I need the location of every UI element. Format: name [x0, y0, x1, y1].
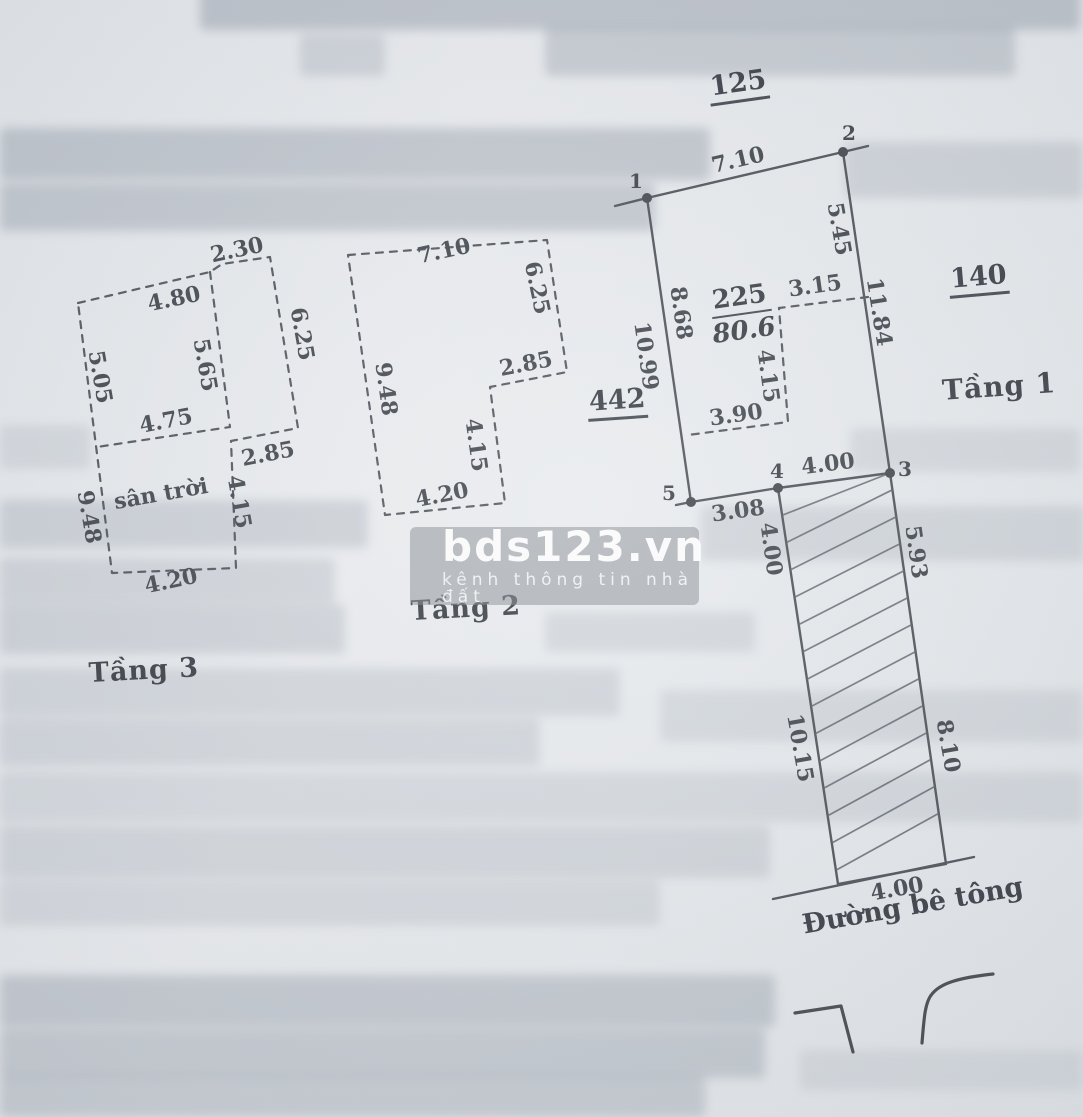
corner-point-number: 2 [842, 121, 856, 145]
lot-number-442: 442 [586, 383, 649, 422]
corner-point-number: 5 [662, 481, 676, 505]
hatch-line [807, 625, 912, 680]
hatch-line [836, 813, 939, 870]
tang1-measurement: 11.84 [861, 276, 897, 348]
tang1-measurement: 3.08 [710, 494, 767, 527]
watermark-tagline: kênh thông tin nhà đất [442, 572, 699, 606]
hatch-line [803, 598, 908, 652]
tang1-measurement: 3.15 [787, 269, 844, 302]
floor-label-tang3: Tầng 3 [88, 652, 200, 689]
tang3-measurement: 2.85 [239, 436, 297, 472]
tang3-measurement: 9.48 [72, 488, 107, 545]
hatch-line [786, 490, 892, 543]
tang3-measurement: 2.30 [208, 232, 266, 269]
tang1-measurement: 4.00 [754, 521, 787, 578]
tang2-measurement: 7.10 [415, 233, 473, 270]
hatch-line [815, 679, 919, 734]
hatch-line [811, 652, 916, 707]
tang2-measurement: 4.15 [459, 417, 492, 474]
corner-point-number: 1 [629, 169, 643, 193]
hatch-line [790, 517, 896, 570]
tang3-measurement: 6.25 [285, 305, 320, 362]
hatch-line [832, 786, 935, 843]
tang1-measurement: 3.90 [708, 398, 765, 431]
tang1-measurement: 8.68 [664, 285, 697, 342]
hatch-line [819, 706, 923, 762]
tang3-measurement: 5.65 [188, 336, 223, 393]
tang1-measurement: 4.15 [751, 348, 784, 405]
tang1-measurement: 8.10 [931, 717, 966, 774]
tang2-measurement: 4.20 [413, 477, 471, 513]
corner-mark-right [922, 974, 993, 1043]
corner-point-number: 4 [770, 459, 784, 483]
watermark-badge: bds123.vn kênh thông tin nhà đất [410, 527, 699, 605]
corner-mark-left [795, 1006, 853, 1052]
hatch-line [795, 544, 901, 598]
tang3-measurement: sân trời [112, 473, 210, 515]
tang3-measurement: 4.80 [145, 281, 203, 318]
tang1-measurement: 4.00 [800, 448, 856, 480]
tang3-measurement: 4.15 [222, 473, 257, 530]
tang2-measurement: 6.25 [519, 259, 556, 317]
tang3-measurement: 5.05 [83, 348, 118, 405]
scanned-document-page: 7.105.4511.848.6810.993.154.153.904.003.… [0, 0, 1083, 1117]
handwritten-corner-marks [795, 974, 993, 1052]
hatch-line [828, 759, 931, 815]
hatch-line [824, 733, 928, 789]
tang3-measurement: 4.20 [142, 563, 200, 600]
lot-number-140: 140 [947, 259, 1010, 299]
parcel-number-area-fraction: 225 80.6 [706, 278, 778, 350]
watermark-brand: bds123.vn [442, 526, 699, 568]
tang2-measurement: 9.48 [369, 361, 402, 418]
tang1-measurement: 10.99 [628, 320, 663, 392]
hatch-line [799, 571, 904, 625]
corner-point-number: 3 [898, 457, 912, 481]
